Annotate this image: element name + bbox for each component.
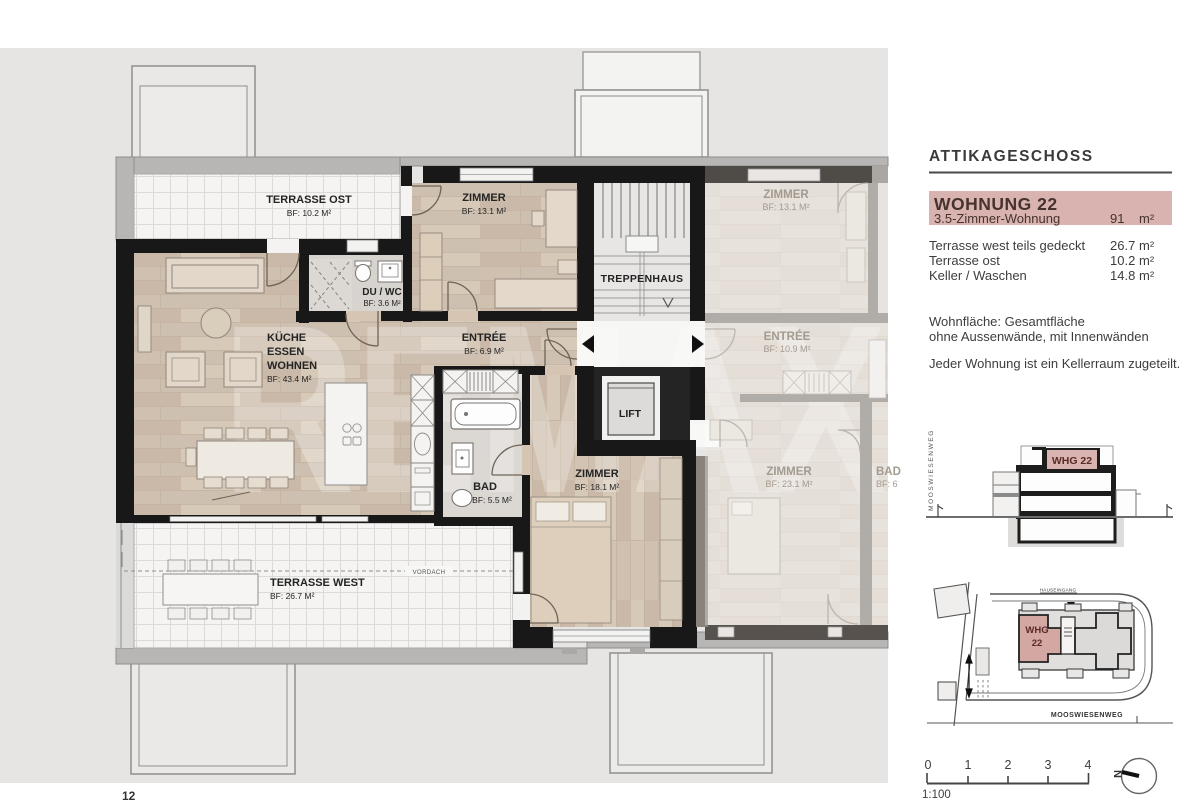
svg-text:4: 4	[1085, 758, 1092, 772]
svg-text:BF: 5.5 M²: BF: 5.5 M²	[472, 495, 512, 505]
svg-text:1:100: 1:100	[922, 789, 951, 800]
svg-text:BF: 6.9 M²: BF: 6.9 M²	[464, 346, 504, 356]
svg-text:91: 91	[1110, 211, 1124, 226]
svg-text:BF: 3.6 M²: BF: 3.6 M²	[363, 299, 401, 308]
svg-text:TERRASSE OST: TERRASSE OST	[266, 194, 352, 206]
svg-text:0: 0	[925, 758, 932, 772]
svg-text:HAUSEINGANG: HAUSEINGANG	[1040, 588, 1077, 593]
svg-text:m²: m²	[1139, 211, 1155, 226]
svg-text:KÜCHE: KÜCHE	[267, 331, 306, 344]
svg-text:26.7: 26.7	[1110, 238, 1135, 253]
svg-text:2: 2	[1005, 758, 1012, 772]
svg-text:14.8: 14.8	[1110, 268, 1135, 283]
svg-text:ATTIKAGESCHOSS: ATTIKAGESCHOSS	[929, 148, 1094, 165]
svg-text:BF: 6: BF: 6	[876, 479, 898, 489]
svg-text:Terrasse ost: Terrasse ost	[929, 253, 1000, 268]
svg-text:WOHNEN: WOHNEN	[267, 360, 317, 372]
svg-text:ZIMMER: ZIMMER	[462, 192, 505, 204]
svg-text:ZIMMER: ZIMMER	[575, 468, 618, 480]
svg-text:WHG 22: WHG 22	[1052, 455, 1092, 467]
svg-text:Terrasse west teils gedeckt: Terrasse west teils gedeckt	[929, 238, 1085, 253]
svg-text:m²: m²	[1139, 238, 1155, 253]
svg-text:DU / WC: DU / WC	[362, 287, 401, 298]
svg-text:ENTRÉE: ENTRÉE	[764, 330, 811, 343]
svg-text:ZIMMER: ZIMMER	[766, 466, 812, 478]
svg-text:1: 1	[965, 758, 972, 772]
svg-text:BF: 26.7 M²: BF: 26.7 M²	[270, 591, 315, 601]
svg-text:10.2: 10.2	[1110, 253, 1135, 268]
svg-text:m²: m²	[1139, 268, 1155, 283]
svg-text:BF: 18.1 M²: BF: 18.1 M²	[575, 482, 620, 492]
svg-text:BF: 23.1 M²: BF: 23.1 M²	[765, 479, 812, 489]
svg-text:m²: m²	[1139, 253, 1155, 268]
svg-text:MOOSWIESENWEG: MOOSWIESENWEG	[928, 429, 935, 511]
svg-text:Keller / Waschen: Keller / Waschen	[929, 268, 1027, 283]
svg-text:3.5-Zimmer-Wohnung: 3.5-Zimmer-Wohnung	[934, 211, 1060, 226]
svg-text:LIFT: LIFT	[619, 408, 642, 420]
svg-text:BF: 13.1 M²: BF: 13.1 M²	[762, 202, 809, 212]
svg-text:3: 3	[1045, 758, 1052, 772]
svg-text:WHG: WHG	[1025, 625, 1048, 636]
svg-text:TERRASSE WEST: TERRASSE WEST	[270, 577, 365, 589]
svg-text:Jeder Wohnung ist ein Kellerra: Jeder Wohnung ist ein Kellerraum zugetei…	[929, 356, 1180, 371]
svg-text:BAD: BAD	[876, 466, 901, 478]
svg-text:BF: 43.4 M²: BF: 43.4 M²	[267, 374, 312, 384]
svg-text:Wohnfläche: Gesamtfläche: Wohnfläche: Gesamtfläche	[929, 314, 1085, 329]
svg-text:N: N	[1111, 770, 1123, 778]
svg-text:BF: 10.9 M²: BF: 10.9 M²	[763, 344, 810, 354]
svg-text:ohne Aussenwände, mit Innenwän: ohne Aussenwände, mit Innenwänden	[929, 329, 1149, 344]
svg-text:ZIMMER: ZIMMER	[763, 189, 809, 201]
svg-text:BF: 13.1 M²: BF: 13.1 M²	[462, 206, 507, 216]
svg-text:ENTRÉE: ENTRÉE	[462, 331, 507, 344]
svg-text:22: 22	[1032, 638, 1043, 649]
svg-text:VORDACH: VORDACH	[413, 570, 446, 576]
svg-text:ESSEN: ESSEN	[267, 346, 304, 358]
svg-text:BF: 10.2 M²: BF: 10.2 M²	[287, 208, 332, 218]
svg-text:TREPPENHAUS: TREPPENHAUS	[601, 273, 684, 285]
svg-text:12: 12	[122, 789, 136, 800]
svg-text:MOOSWIESENWEG: MOOSWIESENWEG	[1051, 712, 1123, 719]
svg-text:BAD: BAD	[473, 481, 497, 493]
